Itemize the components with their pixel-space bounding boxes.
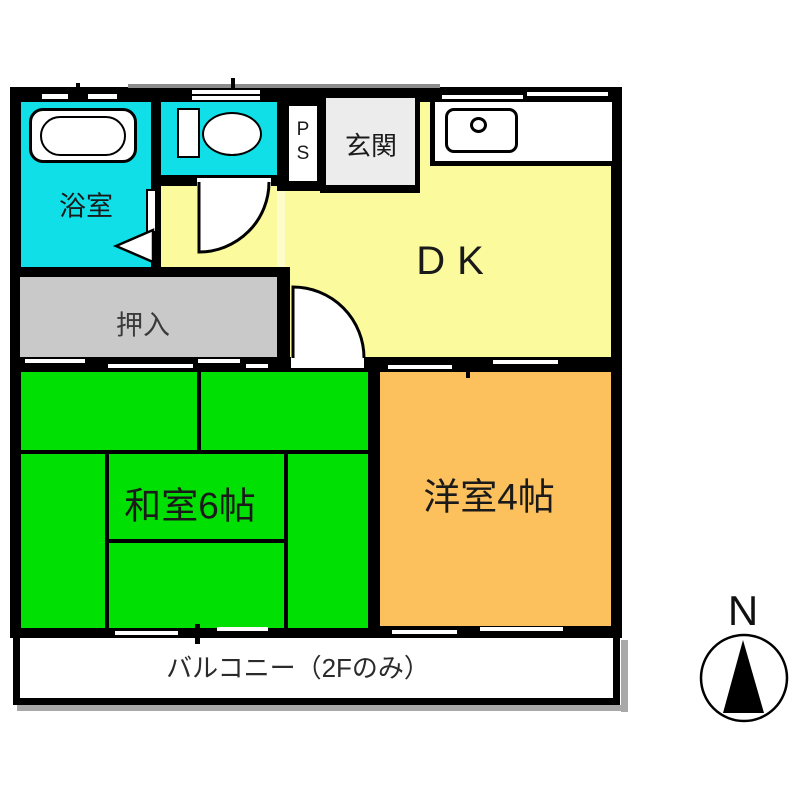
sliding-door-mark [392, 630, 457, 634]
wall-tick [466, 372, 470, 378]
sliding-door-mark [246, 364, 268, 368]
wall-tick [195, 624, 200, 644]
dk-label: DK [416, 241, 496, 281]
balcony-label: バルコニー（2Fのみ） [166, 655, 430, 681]
sliding-door-mark [198, 359, 240, 363]
sliding-door-mark [217, 627, 268, 631]
compass-north-label: N [728, 590, 758, 632]
pipe-space-label: PS [294, 119, 313, 167]
window-mark [192, 96, 260, 100]
entrance-label: 玄関 [345, 133, 397, 159]
toilet-door-arc [199, 182, 269, 252]
bathroom-door-triangle [116, 230, 153, 262]
window-mark [442, 95, 523, 99]
sliding-door-mark [493, 360, 558, 364]
sliding-door-mark [115, 631, 178, 635]
window-mark [192, 90, 260, 94]
sliding-door-mark [108, 364, 193, 368]
dk-door-arc [293, 287, 364, 358]
sliding-door-mark [388, 365, 452, 369]
closet-label: 押入 [116, 313, 170, 340]
japanese-room-label: 和室6帖 [124, 488, 256, 525]
wall-tick [76, 83, 80, 88]
floorplan-canvas: 浴室 PS 玄関 DK 押入 和室6帖 洋室4帖 バルコニー（2Fのみ） N [0, 0, 800, 800]
western-room-label: 洋室4帖 [423, 479, 555, 516]
sliding-door-mark [25, 359, 85, 363]
window-mark [88, 94, 117, 99]
window-mark [527, 92, 608, 96]
sliding-door-mark [480, 627, 563, 631]
wall-tick [231, 78, 235, 88]
bathroom-label: 浴室 [59, 194, 113, 221]
top-wall-cap [128, 84, 440, 88]
window-mark [42, 94, 68, 99]
